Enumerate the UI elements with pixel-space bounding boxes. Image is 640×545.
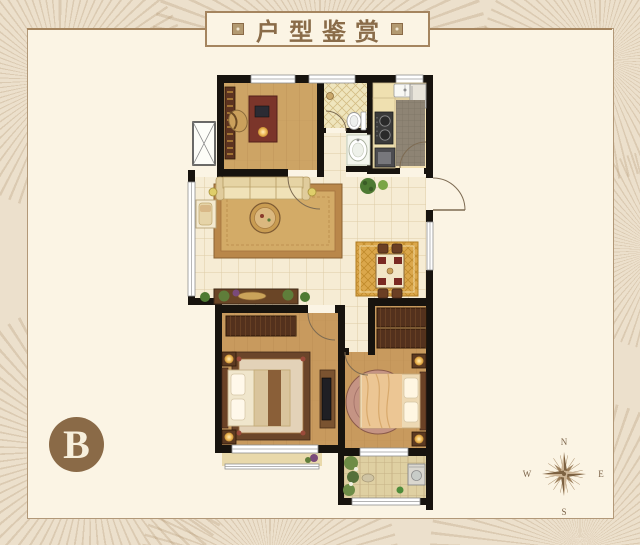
compass-east-label: E [598,469,604,479]
bed-runner [268,370,281,426]
floor-plant [200,292,210,302]
bedside-lamp [415,357,424,366]
dining-table [376,254,404,288]
dining-furniture [356,242,418,298]
second-wardrobe-a [377,308,426,327]
dining-chair [378,244,388,253]
master-wardrobe [226,316,296,336]
title-ornament-right-icon [391,23,403,35]
side-table-lamp [308,188,316,196]
dining-chair [378,289,388,298]
balcony-stones [362,474,374,482]
tv-cabinet [200,289,310,304]
watering-can [397,487,404,494]
page-title: 户型鉴赏 [256,12,388,47]
compass-center [562,472,566,476]
second-wardrobe-b [377,329,426,348]
stove [375,112,393,144]
bedside-lamp [225,433,234,442]
compass-graphic [542,452,586,496]
second-bed [360,372,426,430]
washing-machine [408,464,425,485]
entry-door-arc [433,178,465,210]
bedside-lamp [225,355,234,364]
reading-chair [196,200,216,228]
cabinet-tray [238,292,266,300]
floor-plant [300,292,310,302]
compass-south-label: S [561,507,566,517]
side-table-lamp [209,188,217,196]
tv-screen [322,378,331,420]
floorplan-page: 户型鉴赏 B [0,0,640,545]
header-rule-right [430,28,612,30]
hallway-tiles [345,298,368,352]
title-ornament-left-icon [232,23,244,35]
compass-rose: N E S W [513,423,615,525]
oven [375,148,395,167]
ac-platform [193,122,215,165]
coffee-table [250,203,280,233]
bedside-lamp [415,435,424,444]
shower-head [327,93,334,100]
header-rule-left [27,28,205,30]
page-title-box: 户型鉴赏 [205,11,430,47]
master-bed [222,368,290,428]
compass-west-label: W [523,469,532,479]
toilet [347,112,366,130]
unit-badge-letter: B [63,425,90,465]
dining-chair [392,244,402,253]
sofa [209,177,316,200]
kitchen-rug-texture [396,100,425,166]
dining-chair [392,289,402,298]
pillow [404,402,418,422]
compass-north-label: N [561,437,568,447]
corridor-tiles [324,133,346,177]
wash-basin [347,135,370,165]
cabinet-flowers [233,290,240,297]
cabinet-plant [219,291,230,302]
master-tv-stand [320,370,335,428]
cabinet-plant [283,290,294,301]
unit-badge: B [49,417,104,472]
desk-laptop [255,106,269,117]
desk-lamp [258,127,268,137]
pillow [404,378,418,398]
kitchen-furniture [373,83,426,168]
pillow [231,374,245,395]
pillow [231,399,245,420]
